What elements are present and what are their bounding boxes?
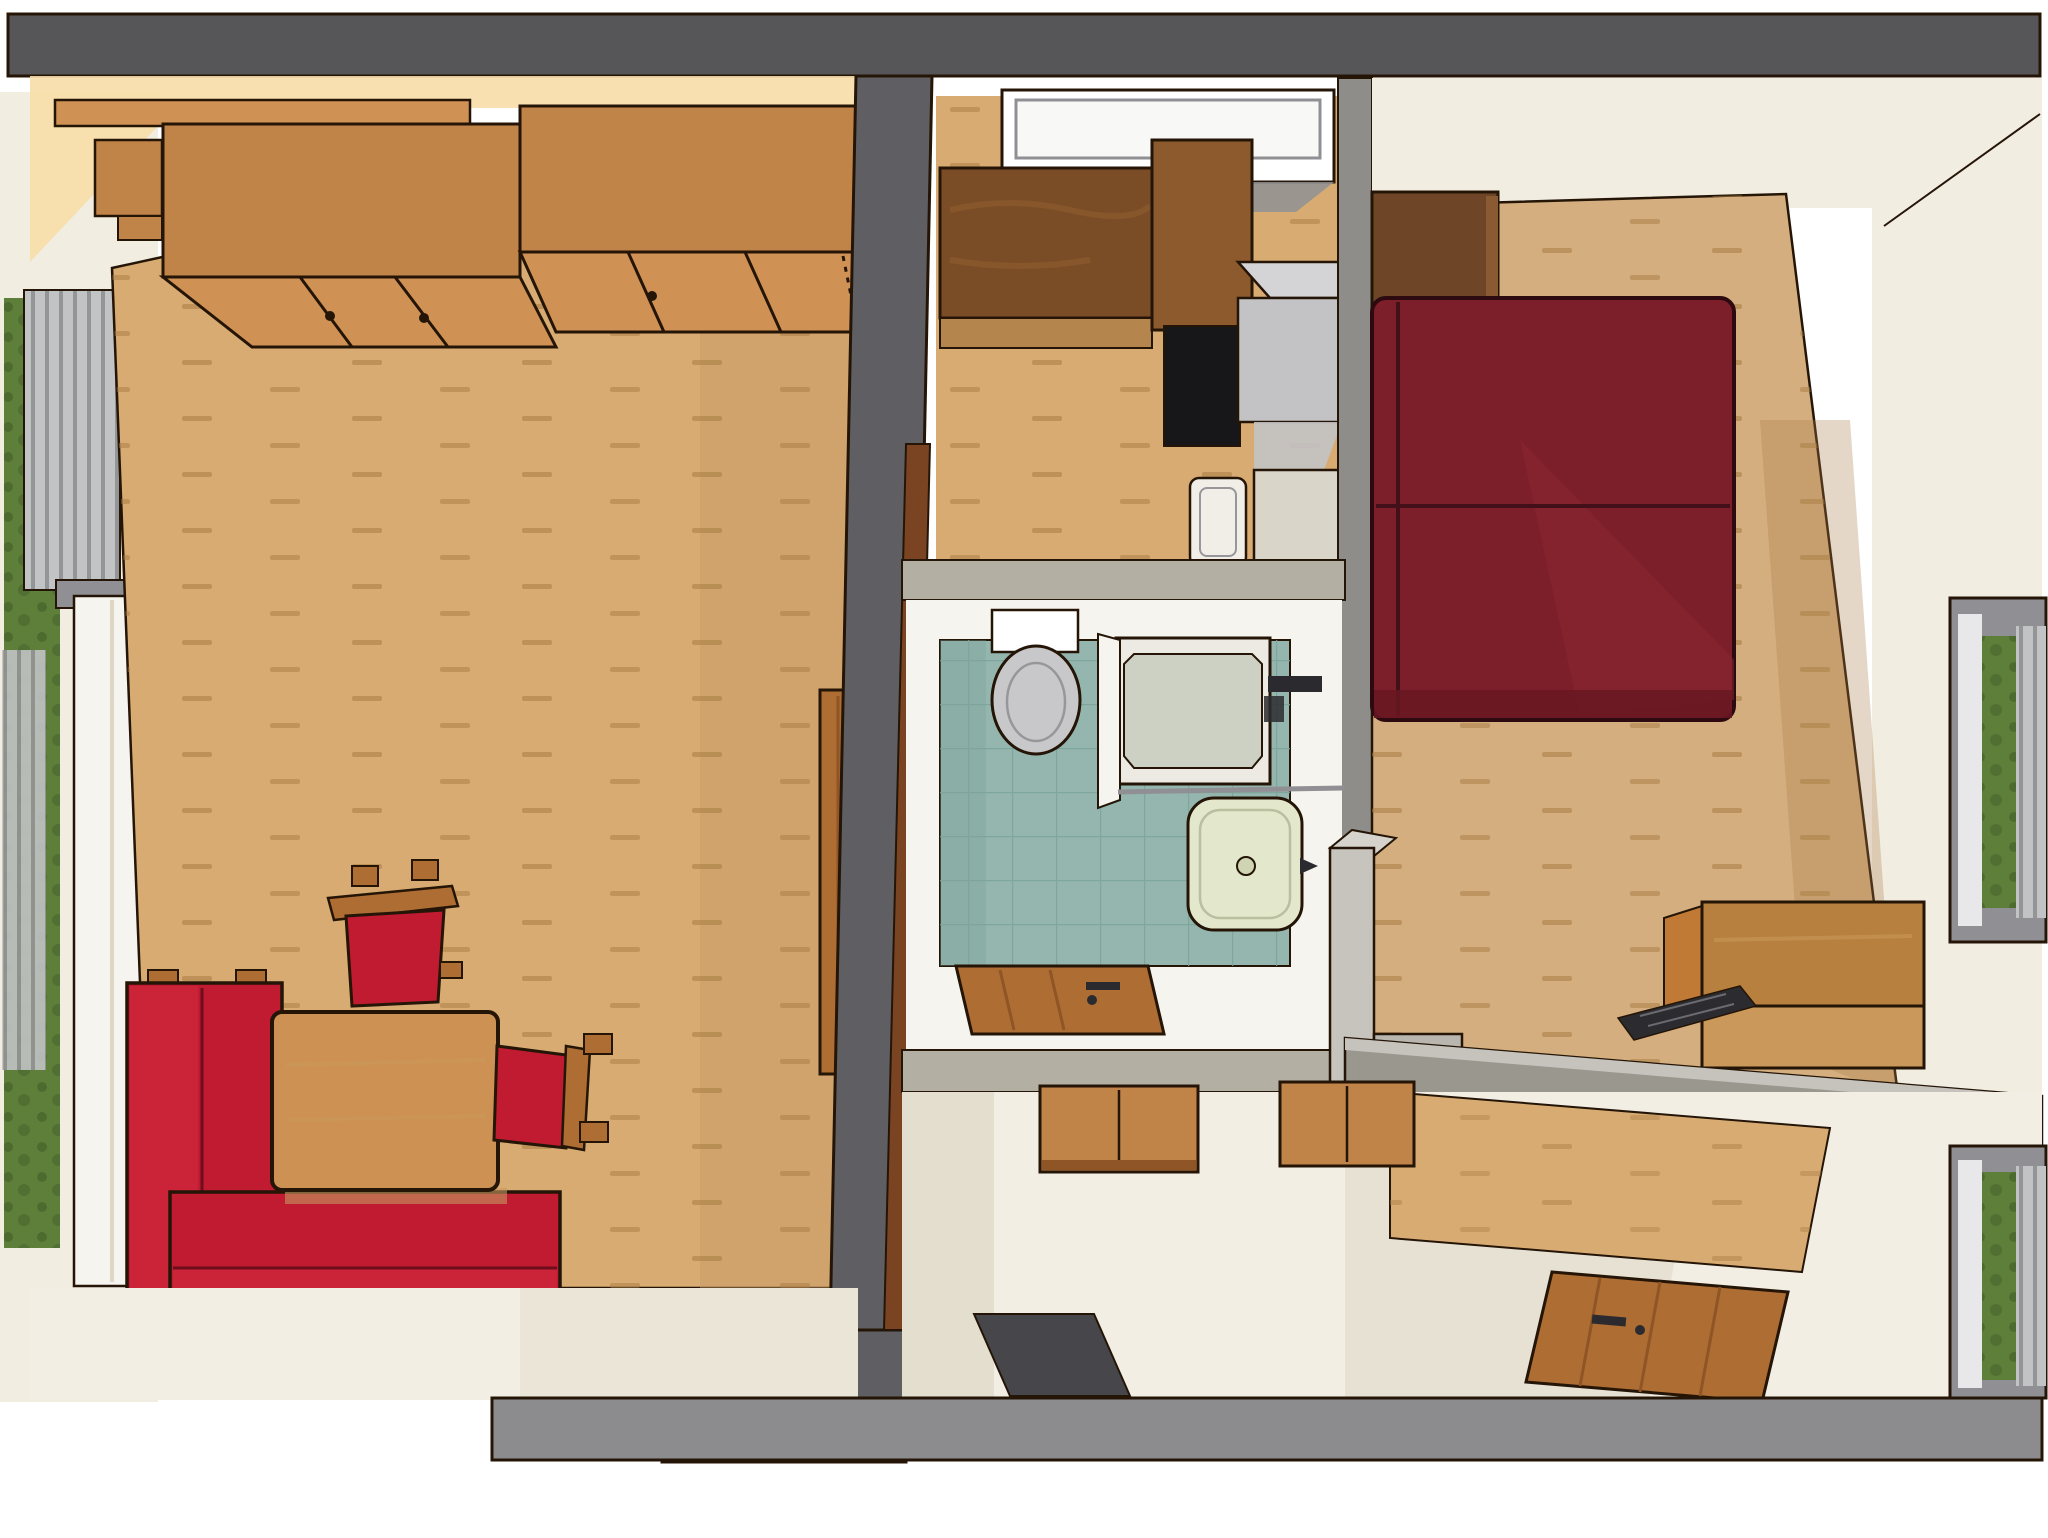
door-handle xyxy=(325,311,335,321)
lower-window-blinds xyxy=(2016,1166,2046,1386)
garden-foliage-texture xyxy=(1982,636,2016,908)
bed-foot-shadow xyxy=(1374,690,1732,718)
wardrobe-side-box xyxy=(95,140,162,216)
cabinet-base-shadow xyxy=(1042,1160,1196,1170)
desk-front xyxy=(1702,1006,1924,1068)
wardrobe-unit-left-top xyxy=(163,124,520,277)
wardrobe-side-box-small xyxy=(118,216,162,240)
desk xyxy=(1664,902,1924,1068)
left-window-blinds xyxy=(24,290,120,590)
door-handle xyxy=(419,313,429,323)
door-knob xyxy=(1087,995,1097,1005)
kitchen-sink xyxy=(1190,478,1246,566)
entry-door xyxy=(1526,1272,1788,1402)
hallway-shadow xyxy=(902,1092,994,1398)
wardrobe-unit-right-front xyxy=(520,252,858,332)
window-jamb xyxy=(1958,614,1982,926)
basin-drain xyxy=(1237,857,1255,875)
toilet xyxy=(992,610,1080,754)
sink-cabinet xyxy=(1254,470,1344,566)
outer-wall-bottom xyxy=(492,1398,2042,1460)
entry-cabinet xyxy=(1280,1082,1414,1166)
wardrobe-top-shelf xyxy=(55,100,470,126)
door-leaf xyxy=(956,966,1164,1034)
chair-arm-wood xyxy=(412,860,438,880)
garden-foliage-texture xyxy=(1982,1172,2016,1380)
door-handle xyxy=(1086,982,1120,990)
chair-arm-wood xyxy=(584,1034,612,1054)
bedroom-window xyxy=(1950,598,2046,942)
floor-strip-shadow xyxy=(520,1288,858,1400)
entry-room xyxy=(1280,1082,2046,1402)
right-window-blinds xyxy=(2016,626,2046,918)
cooktop xyxy=(1164,326,1240,446)
kitchen xyxy=(936,90,1374,566)
bathroom-door xyxy=(956,966,1164,1034)
chair-arm-wood xyxy=(352,866,378,886)
chair-foot-wood xyxy=(440,962,462,978)
washbasin xyxy=(1188,798,1318,930)
door-handle xyxy=(647,291,657,301)
kitchen-counter xyxy=(940,140,1252,348)
chair-arm-wood xyxy=(580,1122,608,1142)
shower-glass-door xyxy=(1098,634,1120,808)
outer-wall-top xyxy=(8,14,2040,76)
window-jamb xyxy=(1958,1160,1982,1388)
left-window-blinds-lower xyxy=(2,650,46,1070)
hallway-cabinet xyxy=(1040,1086,1198,1172)
entry-window xyxy=(1950,1146,2046,1398)
floor-plan-render xyxy=(0,0,2048,1538)
tile-shadow xyxy=(940,640,986,966)
apartment-render xyxy=(0,0,2048,1538)
counter-front xyxy=(940,318,1152,348)
wardrobe-unit-right-top xyxy=(520,106,858,252)
appliance-front-face xyxy=(1238,298,1342,422)
dining-table xyxy=(272,1012,507,1204)
table-top xyxy=(272,1012,498,1190)
counter-top-dark xyxy=(940,168,1152,318)
bathroom xyxy=(902,560,1345,1092)
shower-pan xyxy=(1124,654,1262,768)
shower-faucet xyxy=(1268,676,1322,692)
chair-seat-red xyxy=(346,910,444,1006)
bed xyxy=(1372,298,1734,720)
door-knob xyxy=(1635,1325,1645,1335)
bathroom-top-wall xyxy=(902,560,1345,600)
living-room xyxy=(0,76,858,1402)
shower-valve xyxy=(1264,696,1284,722)
